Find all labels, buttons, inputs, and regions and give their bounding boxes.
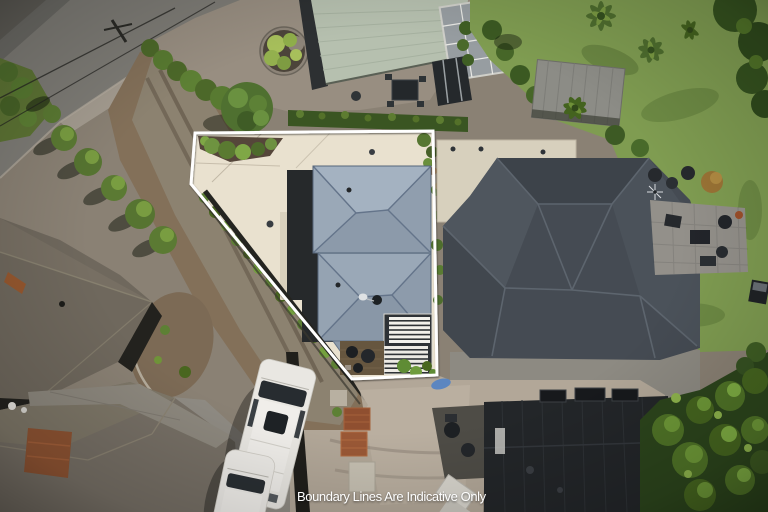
aerial-scene — [0, 0, 768, 512]
vignette-overlay — [0, 0, 768, 512]
aerial-photo: Boundary Lines Are Indicative Only — [0, 0, 768, 512]
